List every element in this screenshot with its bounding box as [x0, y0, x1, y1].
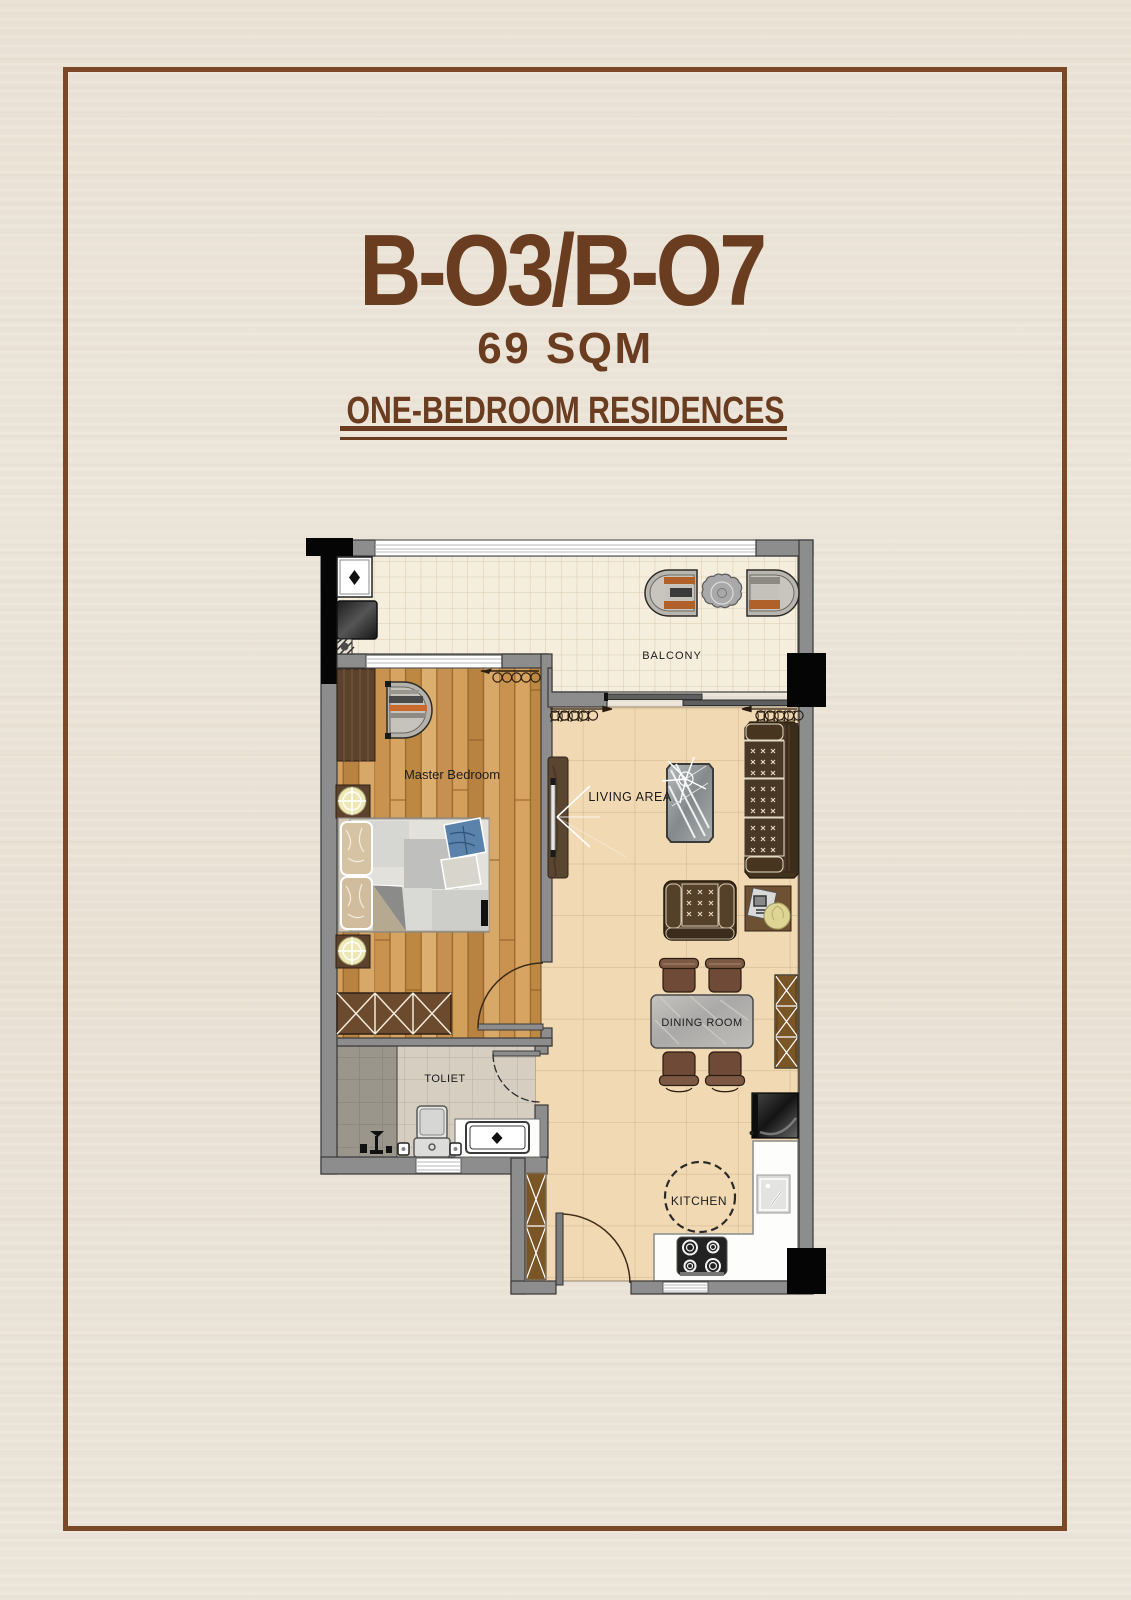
svg-text:DINING ROOM: DINING ROOM: [661, 1017, 742, 1029]
svg-text:LIVING AREA: LIVING AREA: [588, 790, 671, 804]
svg-text:KITCHEN: KITCHEN: [671, 1194, 727, 1208]
svg-text:Master Bedroom: Master Bedroom: [404, 767, 500, 782]
svg-text:TOLIET: TOLIET: [424, 1073, 465, 1085]
svg-text:BALCONY: BALCONY: [642, 650, 702, 662]
